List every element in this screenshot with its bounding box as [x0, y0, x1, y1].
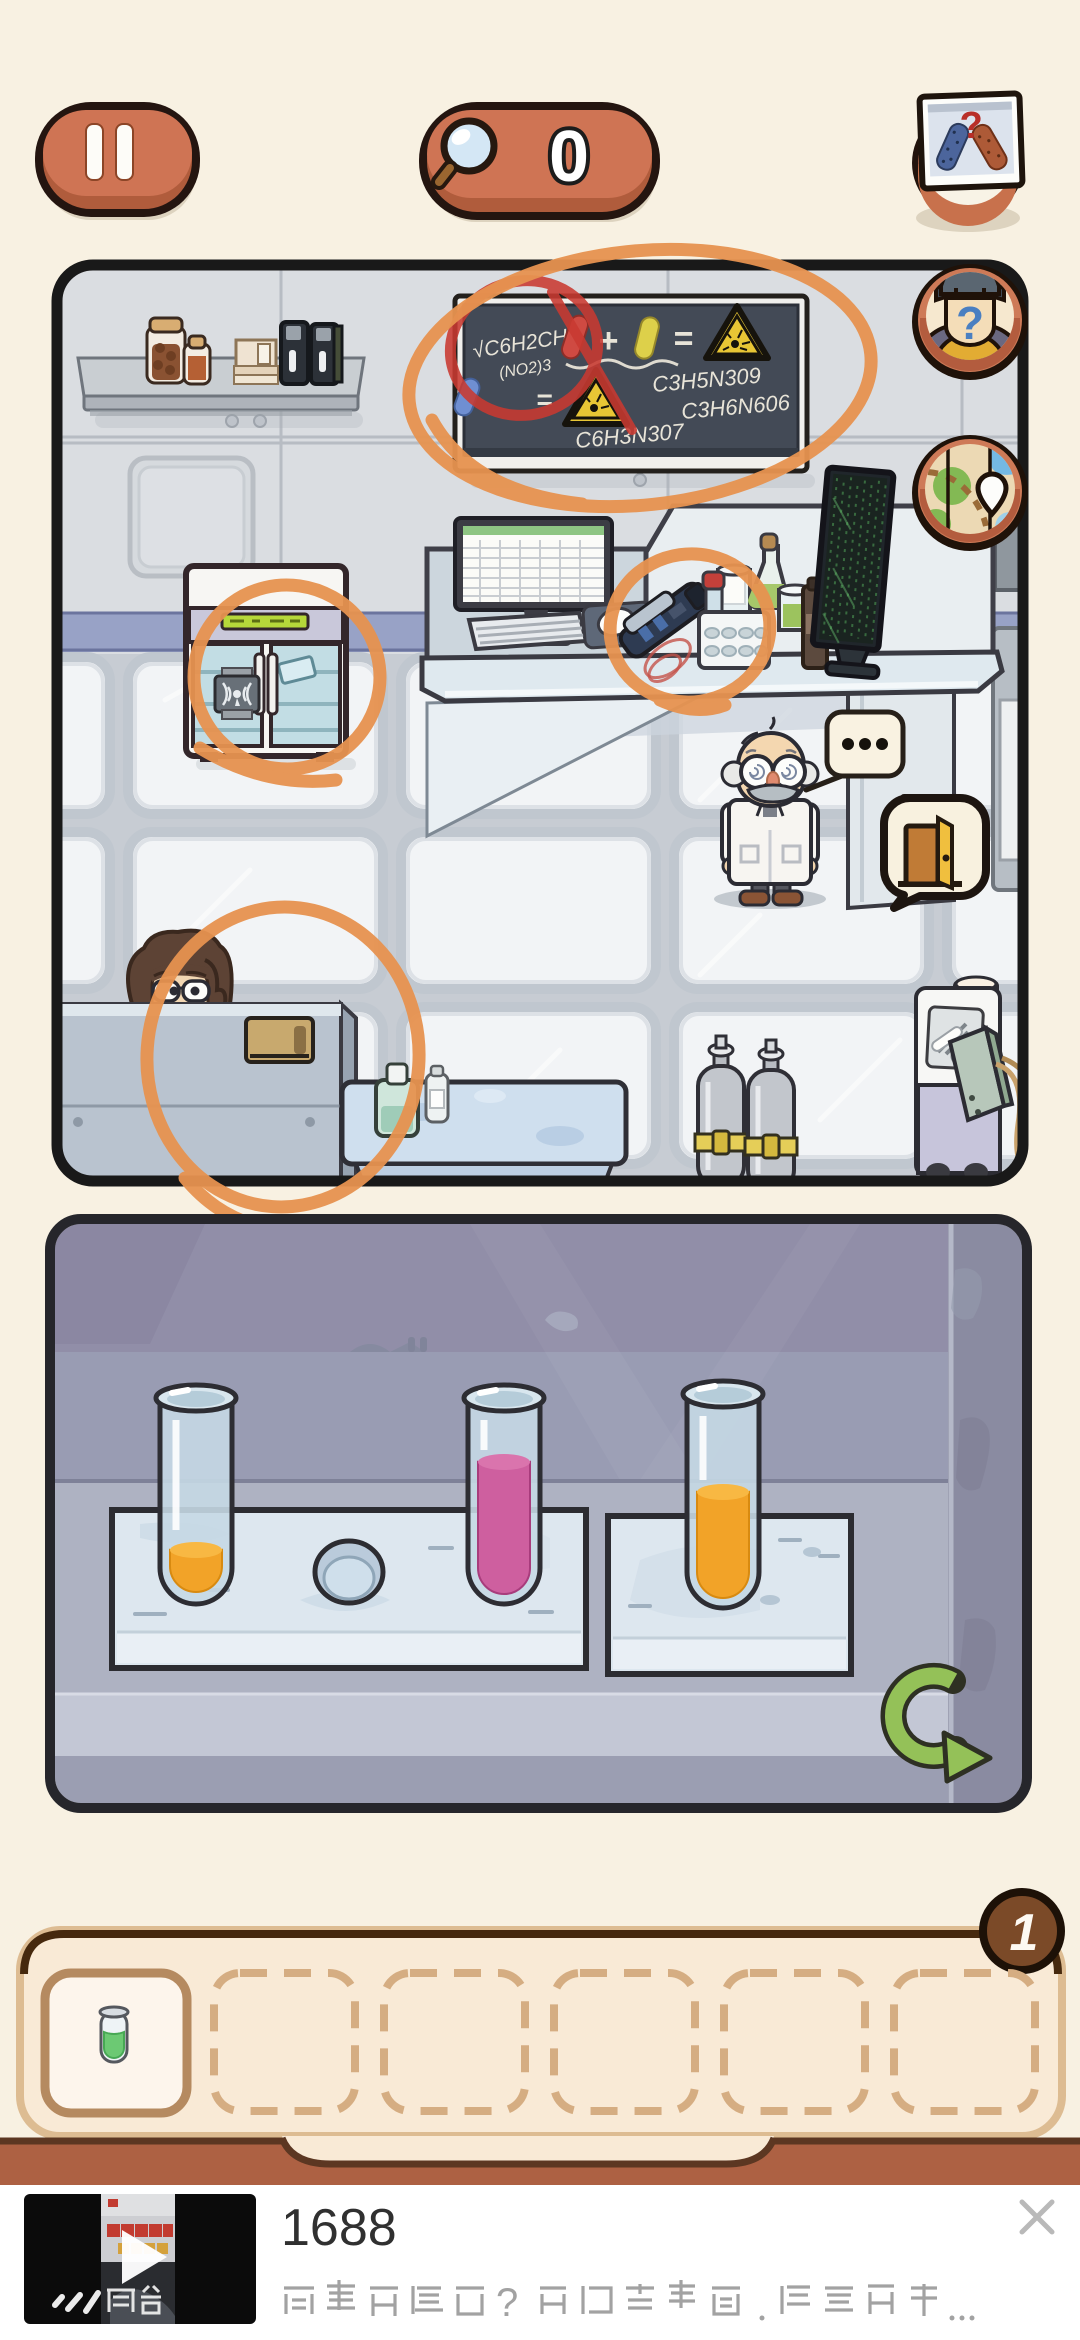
- svg-text:?: ?: [956, 297, 984, 349]
- svg-text:?: ?: [959, 105, 984, 148]
- svg-text:?: ?: [496, 2281, 518, 2325]
- svg-text:1688: 1688: [281, 2199, 397, 2257]
- svg-text:=: =: [673, 320, 693, 358]
- svg-text:1: 1: [1010, 1904, 1039, 1962]
- svg-text:0: 0: [549, 117, 589, 197]
